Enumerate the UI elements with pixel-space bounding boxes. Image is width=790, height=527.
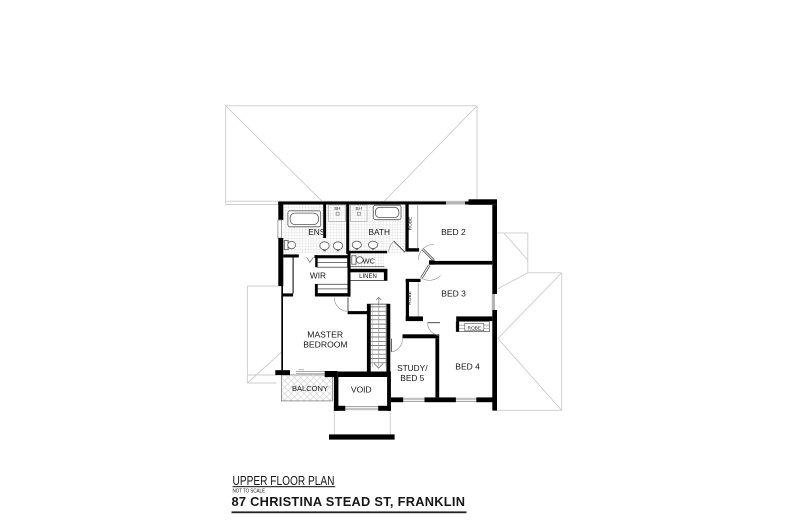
svg-text:WIR: WIR [310,270,326,280]
svg-text:SH: SH [355,206,361,211]
svg-text:BED 2: BED 2 [441,227,466,237]
svg-text:ROBE: ROBE [408,217,414,231]
svg-text:BATH: BATH [368,227,390,237]
svg-text:BED 4: BED 4 [455,361,480,371]
svg-text:ROBE: ROBE [407,291,413,305]
svg-text:ENS: ENS [308,227,326,237]
svg-text:BED 3: BED 3 [441,289,466,299]
svg-text:WC: WC [363,257,376,266]
svg-text:LINEN: LINEN [359,274,377,280]
svg-text:BEDROOM: BEDROOM [303,339,347,349]
svg-text:BED 5: BED 5 [400,373,424,383]
svg-text:ROBE: ROBE [467,325,481,331]
svg-text:SH: SH [334,206,340,211]
svg-text:VOID: VOID [351,384,372,394]
svg-text:STUDY/: STUDY/ [397,363,428,373]
svg-text:MASTER: MASTER [307,329,343,339]
svg-text:UPPER FLOOR PLAN: UPPER FLOOR PLAN [233,474,335,488]
svg-text:87 CHRISTINA STEAD ST, FRANKLI: 87 CHRISTINA STEAD ST, FRANKLIN [232,494,466,509]
svg-text:BALCONY: BALCONY [292,384,328,393]
